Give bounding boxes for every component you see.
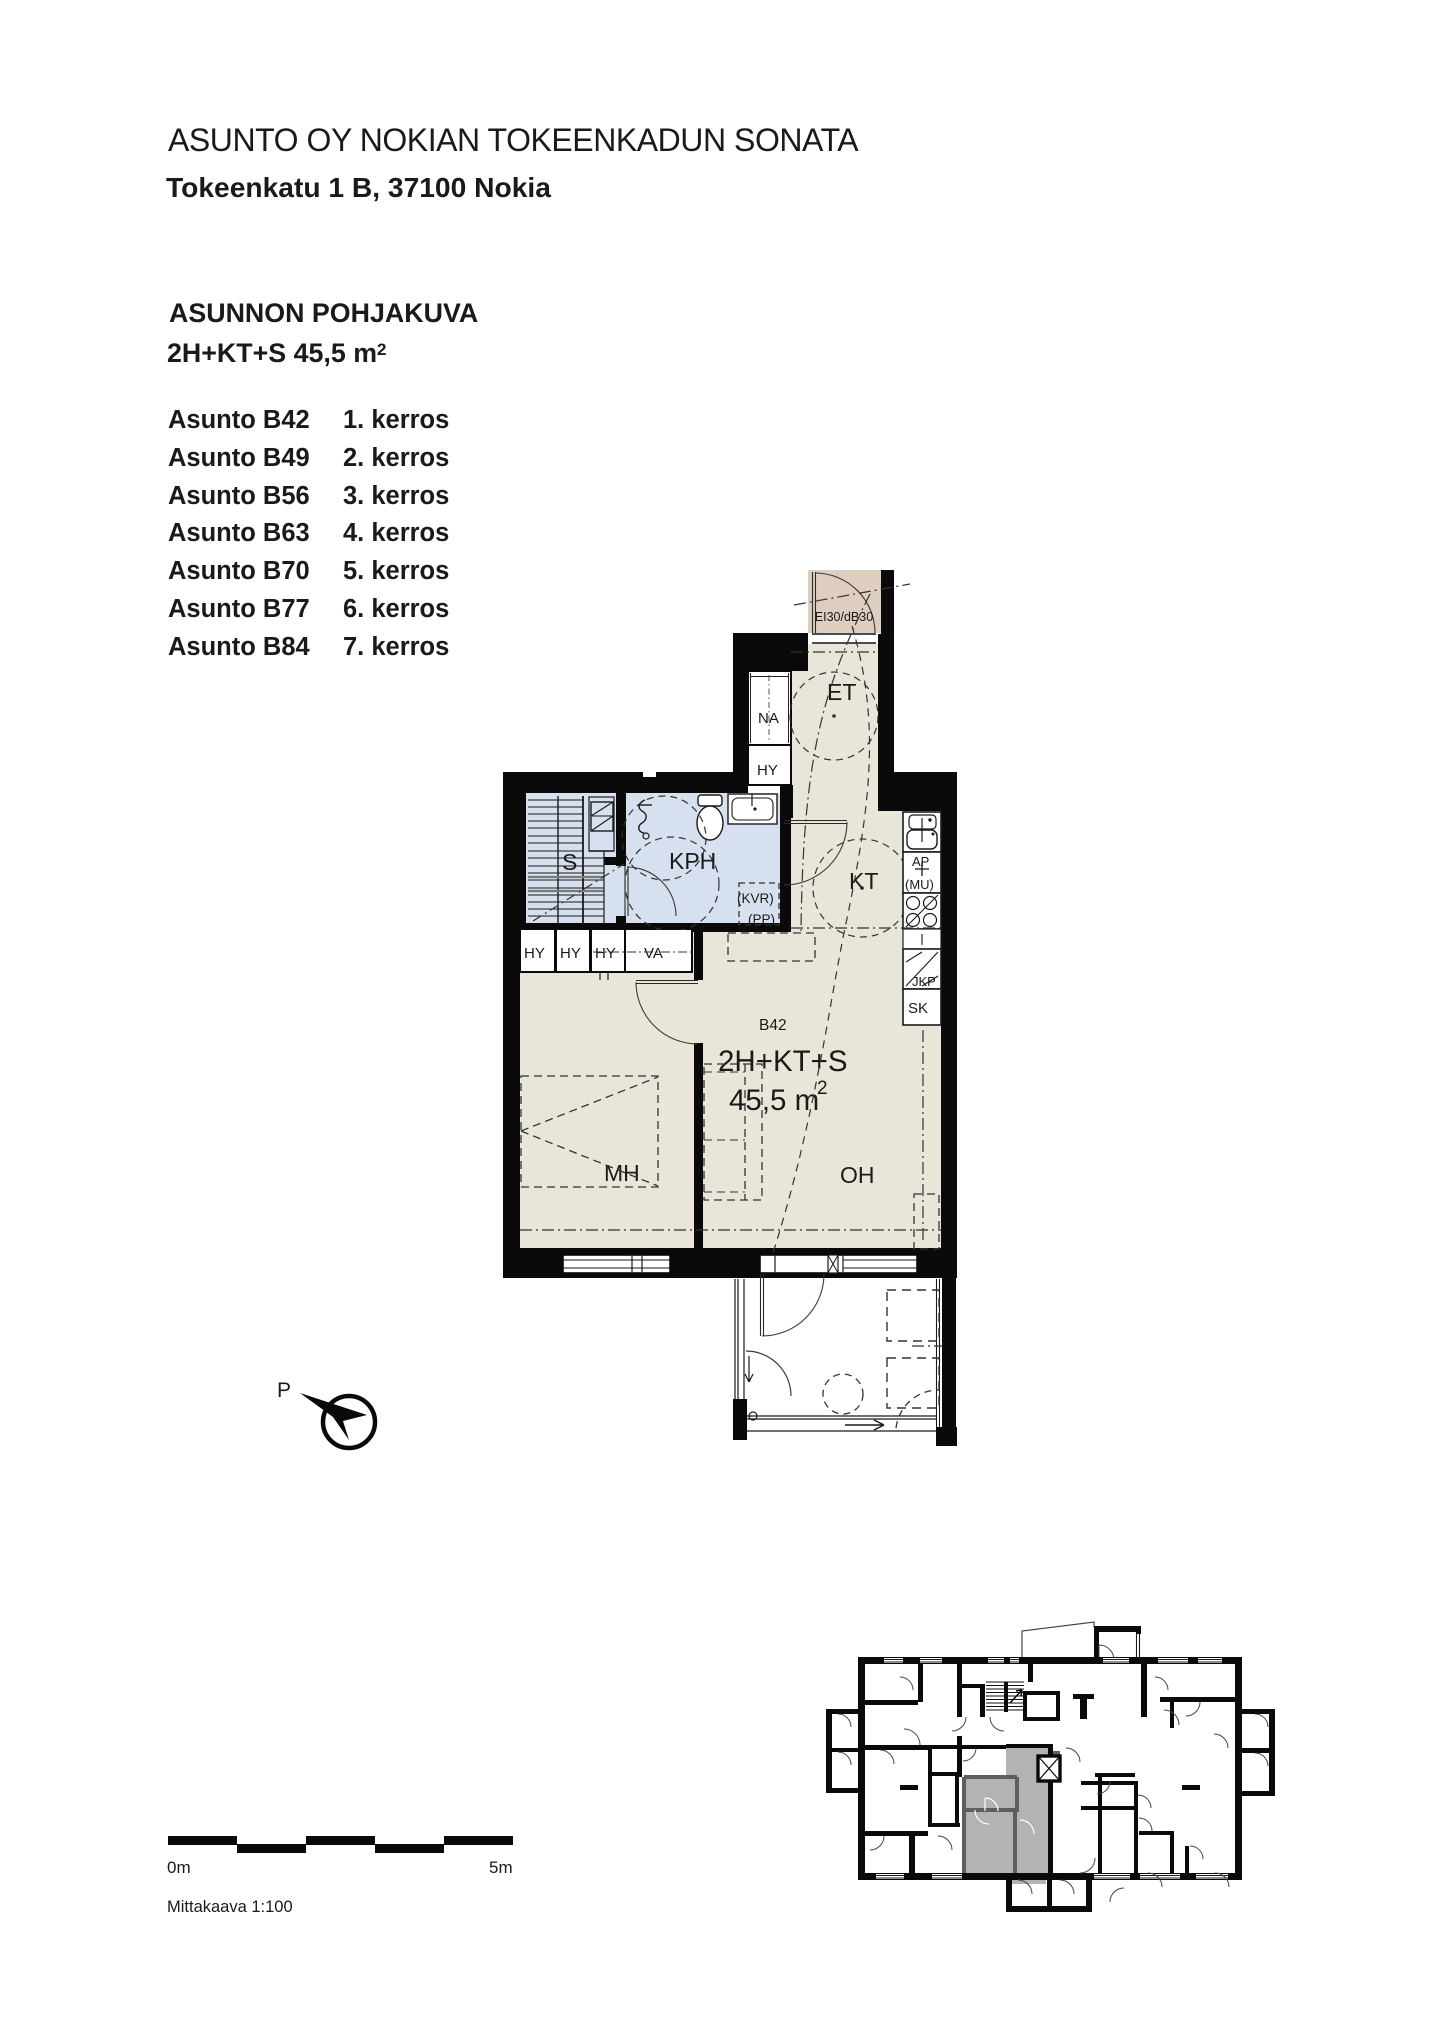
svg-text:(PP): (PP) (748, 912, 775, 927)
svg-text:Mittakaava 1:100: Mittakaava 1:100 (167, 1898, 293, 1916)
svg-text:2H+KT+S: 2H+KT+S (718, 1045, 848, 1078)
svg-text:45,5 m: 45,5 m (729, 1084, 819, 1117)
svg-text:MH: MH (604, 1160, 640, 1186)
svg-text:VA: VA (644, 945, 663, 962)
svg-text:AP: AP (912, 854, 929, 869)
svg-text:HY: HY (757, 762, 778, 779)
svg-text:HY: HY (560, 945, 581, 962)
svg-text:(MU): (MU) (905, 877, 934, 892)
svg-text:B42: B42 (759, 1017, 787, 1034)
svg-text:ET: ET (827, 679, 856, 705)
svg-text:0m: 0m (167, 1858, 191, 1877)
svg-text:S: S (562, 849, 577, 875)
svg-text:(KVR): (KVR) (737, 891, 774, 906)
svg-text:OH: OH (840, 1162, 875, 1188)
svg-text:5m: 5m (489, 1858, 513, 1877)
svg-text:KT: KT (849, 868, 878, 894)
svg-text:P: P (277, 1379, 291, 1402)
svg-text:HY: HY (524, 945, 545, 962)
svg-text:HY: HY (595, 945, 616, 962)
svg-text:JKP: JKP (912, 974, 936, 989)
svg-text:NA: NA (758, 710, 779, 727)
svg-text:KPH: KPH (669, 848, 716, 874)
svg-text:SK: SK (908, 1000, 928, 1017)
svg-text:2: 2 (817, 1078, 828, 1099)
svg-text:EI30/dB30: EI30/dB30 (815, 610, 873, 624)
